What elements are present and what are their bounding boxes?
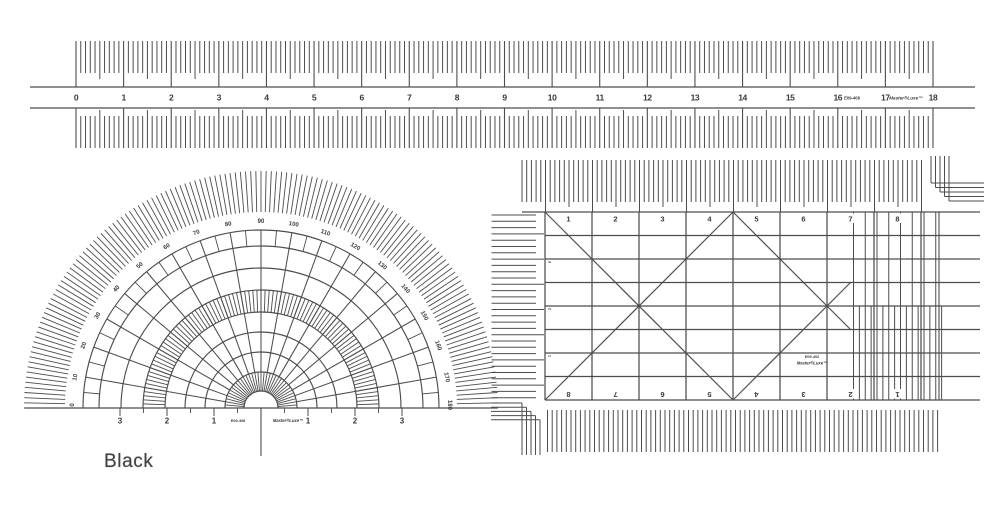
protractor-outer-tick bbox=[348, 195, 366, 232]
protractor-outer-tick bbox=[61, 281, 96, 303]
protractor-degree-label: 20 bbox=[80, 341, 88, 350]
protractor-middle-tick bbox=[300, 300, 309, 320]
protractor-radial-10deg bbox=[267, 233, 292, 373]
protractor-middle-tick bbox=[347, 356, 367, 366]
protractor-degree-label: 150 bbox=[419, 310, 430, 322]
ruler-number: 14 bbox=[738, 93, 747, 103]
protractor-inner-tick bbox=[226, 405, 244, 407]
protractor-middle-tick bbox=[143, 400, 165, 402]
protractor-scale-number: 3 bbox=[400, 417, 405, 426]
protractor-degree-label: 170 bbox=[442, 372, 450, 384]
ruler-number: 7 bbox=[407, 93, 412, 103]
ruler-number: 0 bbox=[74, 93, 79, 103]
protractor-radial-5deg bbox=[84, 392, 100, 393]
protractor-middle-tick bbox=[352, 372, 373, 379]
protractor-degree-label: 40 bbox=[113, 284, 122, 293]
protractor-outer-tick bbox=[449, 342, 488, 353]
protractor-outer-tick bbox=[33, 342, 72, 353]
protractor-outer-tick bbox=[457, 392, 498, 395]
protractor: 1801701601501401301201101009080706050403… bbox=[24, 171, 498, 456]
protractor-radial-5deg bbox=[135, 282, 146, 293]
ruler-number: 18 bbox=[929, 93, 938, 103]
protractor-middle-tick bbox=[356, 392, 378, 395]
protractor-outer-tick bbox=[32, 347, 72, 358]
protractor-outer-tick bbox=[437, 303, 474, 321]
ruler-number: 15 bbox=[786, 93, 795, 103]
protractor-radial-5deg bbox=[275, 231, 276, 247]
protractor-outer-tick bbox=[450, 347, 490, 358]
protractor-outer-tick bbox=[265, 171, 266, 212]
protractor-radial-5deg bbox=[329, 247, 336, 262]
grid-top-number: 6 bbox=[801, 215, 805, 224]
protractor-scale-number: 1 bbox=[306, 417, 311, 426]
protractor-radial-5deg bbox=[422, 392, 438, 393]
protractor-outer-tick bbox=[433, 294, 469, 314]
ruler-number: 13 bbox=[691, 93, 700, 103]
grid-diagonal bbox=[733, 282, 851, 400]
protractor-inner-tick bbox=[278, 405, 296, 407]
protractor-outer-tick bbox=[287, 173, 292, 214]
grid-bottom-number: 7 bbox=[613, 390, 617, 399]
protractor-middle-tick bbox=[357, 400, 379, 402]
protractor-outer-tick bbox=[303, 177, 312, 217]
ruler-number: 16 bbox=[833, 93, 842, 103]
grid-side-number: 2 bbox=[548, 308, 553, 311]
protractor-outer-tick bbox=[195, 180, 206, 219]
protractor-middle-tick bbox=[144, 392, 166, 395]
protractor-outer-tick bbox=[429, 285, 464, 306]
ruler-number: 3 bbox=[217, 93, 222, 103]
protractor-outer-tick bbox=[143, 203, 164, 239]
protractor-outer-tick bbox=[344, 193, 361, 230]
protractor-radial-5deg bbox=[417, 362, 432, 366]
template-scan-image: 0123456789101112131415161718E09-408Maste… bbox=[0, 0, 1000, 510]
ruler-18-inch: 0123456789101112131415161718E09-408Maste… bbox=[30, 41, 975, 148]
ruler-number: 6 bbox=[360, 93, 365, 103]
ruler-number: 10 bbox=[548, 93, 557, 103]
protractor-degree-label: 90 bbox=[258, 219, 265, 225]
protractor-inner-tick bbox=[236, 383, 249, 396]
protractor-middle-tick bbox=[245, 291, 248, 313]
protractor-outer-tick bbox=[240, 172, 244, 213]
protractor-inner-tick bbox=[273, 383, 286, 396]
protractor-outer-tick bbox=[456, 387, 497, 391]
grid-top-number: 1 bbox=[566, 215, 570, 224]
protractor-outer-tick bbox=[366, 208, 388, 243]
protractor-outer-tick bbox=[46, 308, 83, 325]
protractor-degree-label: 160 bbox=[433, 340, 442, 352]
ruler-number: 12 bbox=[643, 93, 652, 103]
protractor-outer-tick bbox=[210, 177, 219, 217]
protractor-inner-tick bbox=[258, 373, 260, 391]
protractor-outer-tick bbox=[134, 208, 156, 243]
protractor-outer-tick bbox=[25, 387, 66, 391]
protractor-degree-label: 70 bbox=[193, 229, 202, 237]
protractor-outer-tick bbox=[51, 299, 87, 318]
protractor-outer-tick bbox=[435, 299, 471, 318]
protractor-middle-tick bbox=[274, 291, 277, 313]
grid-diagonal bbox=[733, 212, 851, 330]
protractor-degree-label: 140 bbox=[399, 283, 410, 295]
grid-brand-logo: Master®Luxe™ bbox=[797, 361, 828, 366]
protractor-scale-number: 3 bbox=[118, 417, 123, 426]
protractor-outer-tick bbox=[161, 193, 178, 230]
protractor-degree-label: 10 bbox=[72, 373, 79, 381]
protractor-degree-label: 180 bbox=[446, 400, 452, 411]
protractor-outer-tick bbox=[308, 178, 318, 218]
protractor-outer-tick bbox=[453, 362, 493, 370]
grid-bottom-number: 3 bbox=[801, 390, 805, 399]
protractor-radial-5deg bbox=[303, 236, 307, 251]
grid-side-number: 3 bbox=[548, 261, 553, 264]
protractor-middle-tick bbox=[268, 290, 270, 312]
protractor-radial-5deg bbox=[376, 282, 387, 293]
grid-product-code: E09-402 bbox=[805, 355, 819, 359]
grid-template: 1234567887654321321E09-402Master®Luxe™ bbox=[491, 156, 984, 455]
protractor-radial-5deg bbox=[100, 333, 115, 340]
protractor-radial-5deg bbox=[394, 306, 407, 315]
protractor-outer-tick bbox=[370, 211, 393, 245]
protractor-outer-tick bbox=[245, 172, 248, 213]
protractor-middle-tick bbox=[297, 299, 305, 319]
protractor-radial-5deg bbox=[215, 236, 219, 251]
grid-top-number: 7 bbox=[848, 215, 852, 224]
protractor-outer-tick bbox=[58, 285, 93, 306]
protractor-radial-5deg bbox=[89, 362, 104, 366]
protractor-middle-tick bbox=[257, 290, 258, 312]
protractor-product-code: E09-408 bbox=[231, 419, 245, 423]
protractor-middle-tick bbox=[350, 364, 370, 372]
grid-bottom-number: 1 bbox=[895, 390, 899, 399]
protractor-middle-tick bbox=[144, 396, 166, 398]
protractor-radial-10deg bbox=[230, 233, 255, 373]
protractor-scale-number: 2 bbox=[353, 417, 358, 426]
protractor-degree-label: 30 bbox=[94, 311, 103, 320]
protractor-outer-tick bbox=[24, 398, 65, 400]
protractor-outer-tick bbox=[48, 303, 85, 321]
protractor-outer-tick bbox=[152, 198, 171, 234]
grid-top-number: 8 bbox=[895, 215, 899, 224]
protractor-middle-tick bbox=[149, 372, 170, 379]
protractor-scale-number: 1 bbox=[212, 417, 217, 426]
protractor-radial-5deg bbox=[245, 231, 246, 247]
protractor-outer-tick bbox=[25, 392, 66, 395]
protractor-radial-5deg bbox=[408, 333, 423, 340]
protractor-middle-tick bbox=[213, 300, 222, 320]
protractor-outer-tick bbox=[147, 200, 167, 236]
protractor-outer-tick bbox=[439, 308, 476, 325]
protractor-middle-tick bbox=[271, 291, 273, 313]
protractor-brand-logo: Master®Luxe™ bbox=[273, 418, 304, 423]
protractor-radial-5deg bbox=[115, 306, 128, 315]
protractor-degree-label: 120 bbox=[349, 242, 361, 253]
grid-top-number: 5 bbox=[754, 215, 758, 224]
protractor-outer-tick bbox=[230, 173, 235, 214]
protractor-outer-tick bbox=[30, 357, 70, 366]
protractor-outer-tick bbox=[455, 377, 496, 382]
protractor-degree-label: 130 bbox=[376, 260, 388, 271]
protractor-outer-tick bbox=[359, 203, 380, 239]
protractor-outer-tick bbox=[205, 178, 215, 218]
ruler-number: 8 bbox=[455, 93, 460, 103]
protractor-middle-tick bbox=[209, 302, 219, 322]
protractor-outer-tick bbox=[424, 276, 458, 299]
protractor-middle-tick bbox=[357, 404, 379, 405]
protractor-outer-tick bbox=[53, 294, 89, 314]
grid-top-number: 3 bbox=[660, 215, 664, 224]
protractor-outer-tick bbox=[451, 352, 491, 362]
protractor-middle-tick bbox=[153, 360, 173, 369]
protractor-radial-5deg bbox=[186, 247, 193, 262]
protractor-degree-label: 0 bbox=[70, 403, 76, 407]
protractor-outer-tick bbox=[26, 377, 67, 382]
protractor-outer-tick bbox=[426, 281, 461, 303]
technical-drawing-canvas: 0123456789101112131415161718E09-408Maste… bbox=[0, 0, 1000, 510]
protractor-outer-tick bbox=[156, 195, 174, 232]
protractor-middle-tick bbox=[152, 364, 172, 372]
protractor-outer-tick bbox=[278, 172, 282, 213]
protractor-outer-tick bbox=[270, 171, 272, 212]
grid-bottom-number: 2 bbox=[848, 390, 852, 399]
ruler-number: 2 bbox=[169, 93, 174, 103]
protractor-outer-tick bbox=[24, 403, 65, 404]
protractor-degree-label: 110 bbox=[320, 229, 332, 238]
protractor-degree-label: 80 bbox=[225, 221, 233, 228]
protractor-degree-label: 60 bbox=[163, 243, 172, 252]
ruler-number: 5 bbox=[312, 93, 317, 103]
ruler-product-code: E09-408 bbox=[844, 96, 861, 101]
protractor-outer-tick bbox=[215, 176, 223, 216]
protractor-outer-tick bbox=[452, 357, 492, 366]
protractor-outer-tick bbox=[29, 362, 69, 370]
protractor-outer-tick bbox=[316, 180, 327, 219]
protractor-outer-tick bbox=[56, 290, 92, 311]
grid-bottom-number: 6 bbox=[660, 390, 664, 399]
protractor-outer-tick bbox=[274, 172, 277, 213]
ruler-number: 9 bbox=[502, 93, 507, 103]
grid-bottom-number: 8 bbox=[566, 390, 570, 399]
protractor-middle-tick bbox=[291, 296, 298, 317]
protractor-scale-number: 2 bbox=[165, 417, 170, 426]
protractor-middle-tick bbox=[303, 302, 313, 322]
grid-top-number: 2 bbox=[613, 215, 617, 224]
ruler-number: 11 bbox=[596, 93, 605, 103]
protractor-outer-tick bbox=[251, 171, 253, 212]
ruler-number: 1 bbox=[121, 93, 126, 103]
protractor-inner-tick bbox=[262, 373, 264, 391]
protractor-middle-tick bbox=[253, 290, 255, 312]
ruler-number: 4 bbox=[264, 93, 269, 103]
protractor-outer-tick bbox=[355, 200, 375, 236]
protractor-outer-tick bbox=[200, 179, 211, 219]
grid-bottom-number: 5 bbox=[707, 390, 711, 399]
protractor-outer-tick bbox=[25, 382, 66, 386]
protractor-outer-tick bbox=[282, 172, 286, 213]
protractor-outer-tick bbox=[129, 211, 152, 245]
protractor-radial-5deg bbox=[159, 262, 168, 275]
protractor-outer-tick bbox=[235, 172, 239, 213]
protractor-outer-tick bbox=[456, 382, 497, 386]
protractor-radial-10deg bbox=[296, 377, 436, 402]
protractor-outer-tick bbox=[138, 205, 159, 240]
protractor-outer-tick bbox=[431, 290, 467, 311]
protractor-middle-tick bbox=[249, 291, 251, 313]
protractor-outer-tick bbox=[256, 171, 257, 212]
protractor-middle-tick bbox=[143, 404, 165, 405]
protractor-middle-tick bbox=[155, 356, 175, 366]
color-label: Black bbox=[104, 451, 153, 473]
protractor-outer-tick bbox=[64, 276, 98, 299]
protractor-middle-tick bbox=[217, 299, 225, 319]
protractor-outer-tick bbox=[299, 176, 307, 216]
protractor-degree-label: 50 bbox=[136, 261, 145, 270]
ruler-brand-logo: Master®Luxe™ bbox=[889, 95, 923, 101]
protractor-outer-tick bbox=[363, 205, 384, 240]
protractor-degree-label: 100 bbox=[288, 221, 300, 229]
protractor-radial-5deg bbox=[354, 262, 363, 275]
protractor-outer-tick bbox=[352, 198, 371, 234]
grid-side-number: 1 bbox=[548, 355, 553, 358]
protractor-outer-tick bbox=[31, 352, 71, 362]
protractor-outer-tick bbox=[312, 179, 323, 219]
protractor-radial-10deg bbox=[86, 377, 226, 402]
protractor-middle-tick bbox=[356, 396, 378, 398]
protractor-middle-tick bbox=[225, 296, 232, 317]
protractor-middle-tick bbox=[349, 360, 369, 369]
protractor-middle-tick bbox=[264, 290, 265, 312]
